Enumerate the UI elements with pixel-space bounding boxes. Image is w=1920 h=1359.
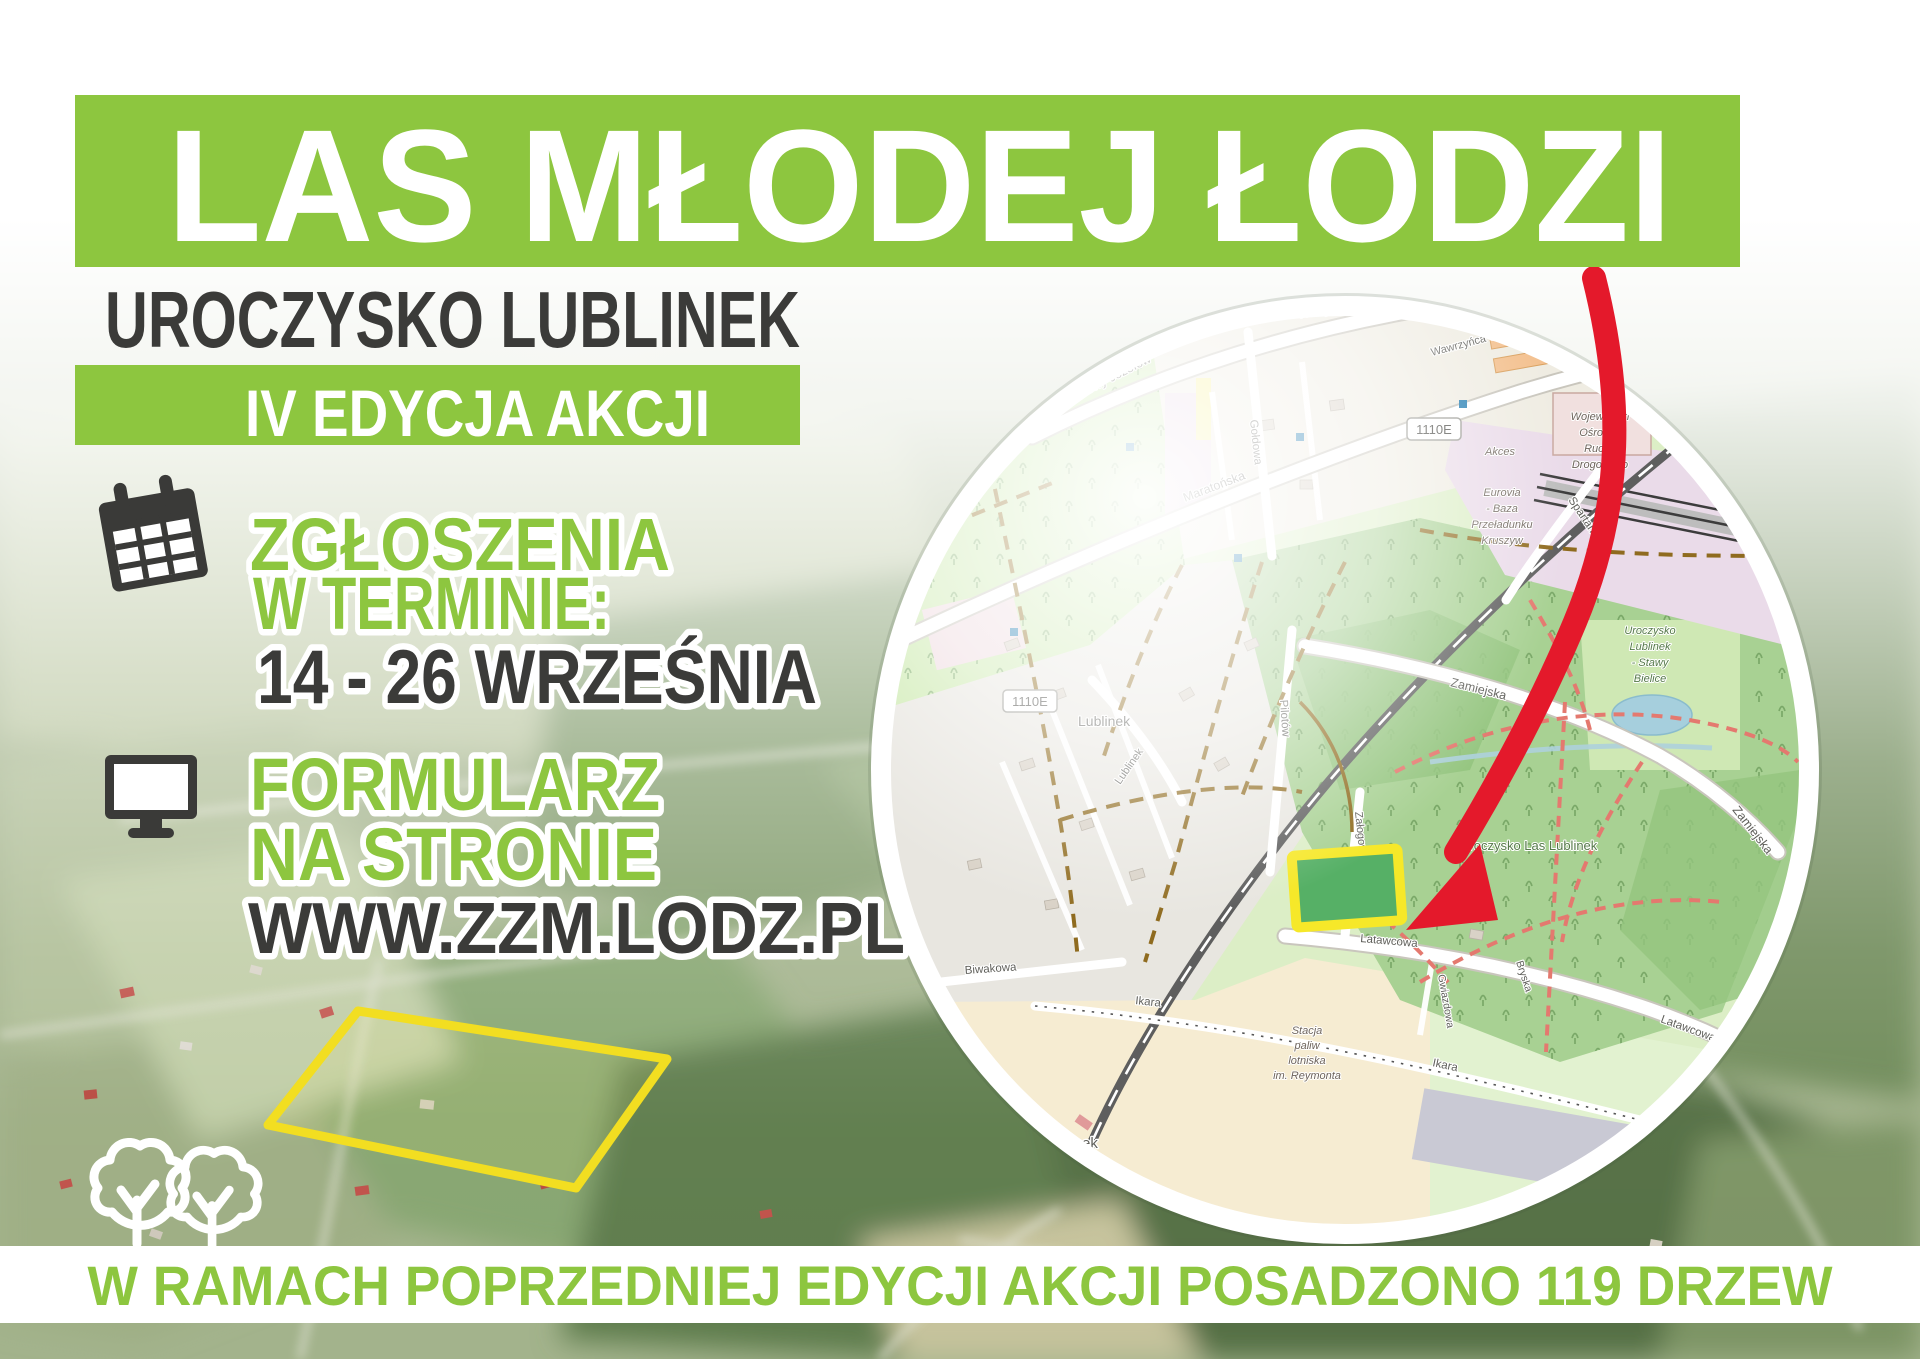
form-url: WWW.ZZM.LODZ.PL: [248, 889, 905, 969]
page-subtitle: UROCZYSKO LUBLINEK: [105, 275, 800, 364]
edition-badge: IV EDYCJA AKCJI: [245, 376, 710, 450]
edition-banner: IV EDYCJA AKCJI: [75, 365, 800, 450]
footer-text: W RAMACH POPRZEDNIEJ EDYCJI AKCJI POSADZ…: [88, 1254, 1833, 1317]
poster-root: 1110E 1110E Maratońska Maratońska Nowy J…: [0, 0, 1920, 1359]
title-banner: LAS MŁODEJ ŁODZI: [75, 95, 1740, 275]
page-title: LAS MŁODEJ ŁODZI: [167, 96, 1672, 275]
form-line2: NA STRONIE: [250, 813, 657, 896]
signup-line2: W TERMINIE:: [253, 562, 610, 645]
signup-dates: 14 - 26 WRZEŚNIA: [257, 635, 817, 720]
footer-banner: W RAMACH POPRZEDNIEJ EDYCJI AKCJI POSADZ…: [0, 1246, 1920, 1323]
poster-canvas: 1110E 1110E Maratońska Maratońska Nowy J…: [0, 0, 1920, 1359]
